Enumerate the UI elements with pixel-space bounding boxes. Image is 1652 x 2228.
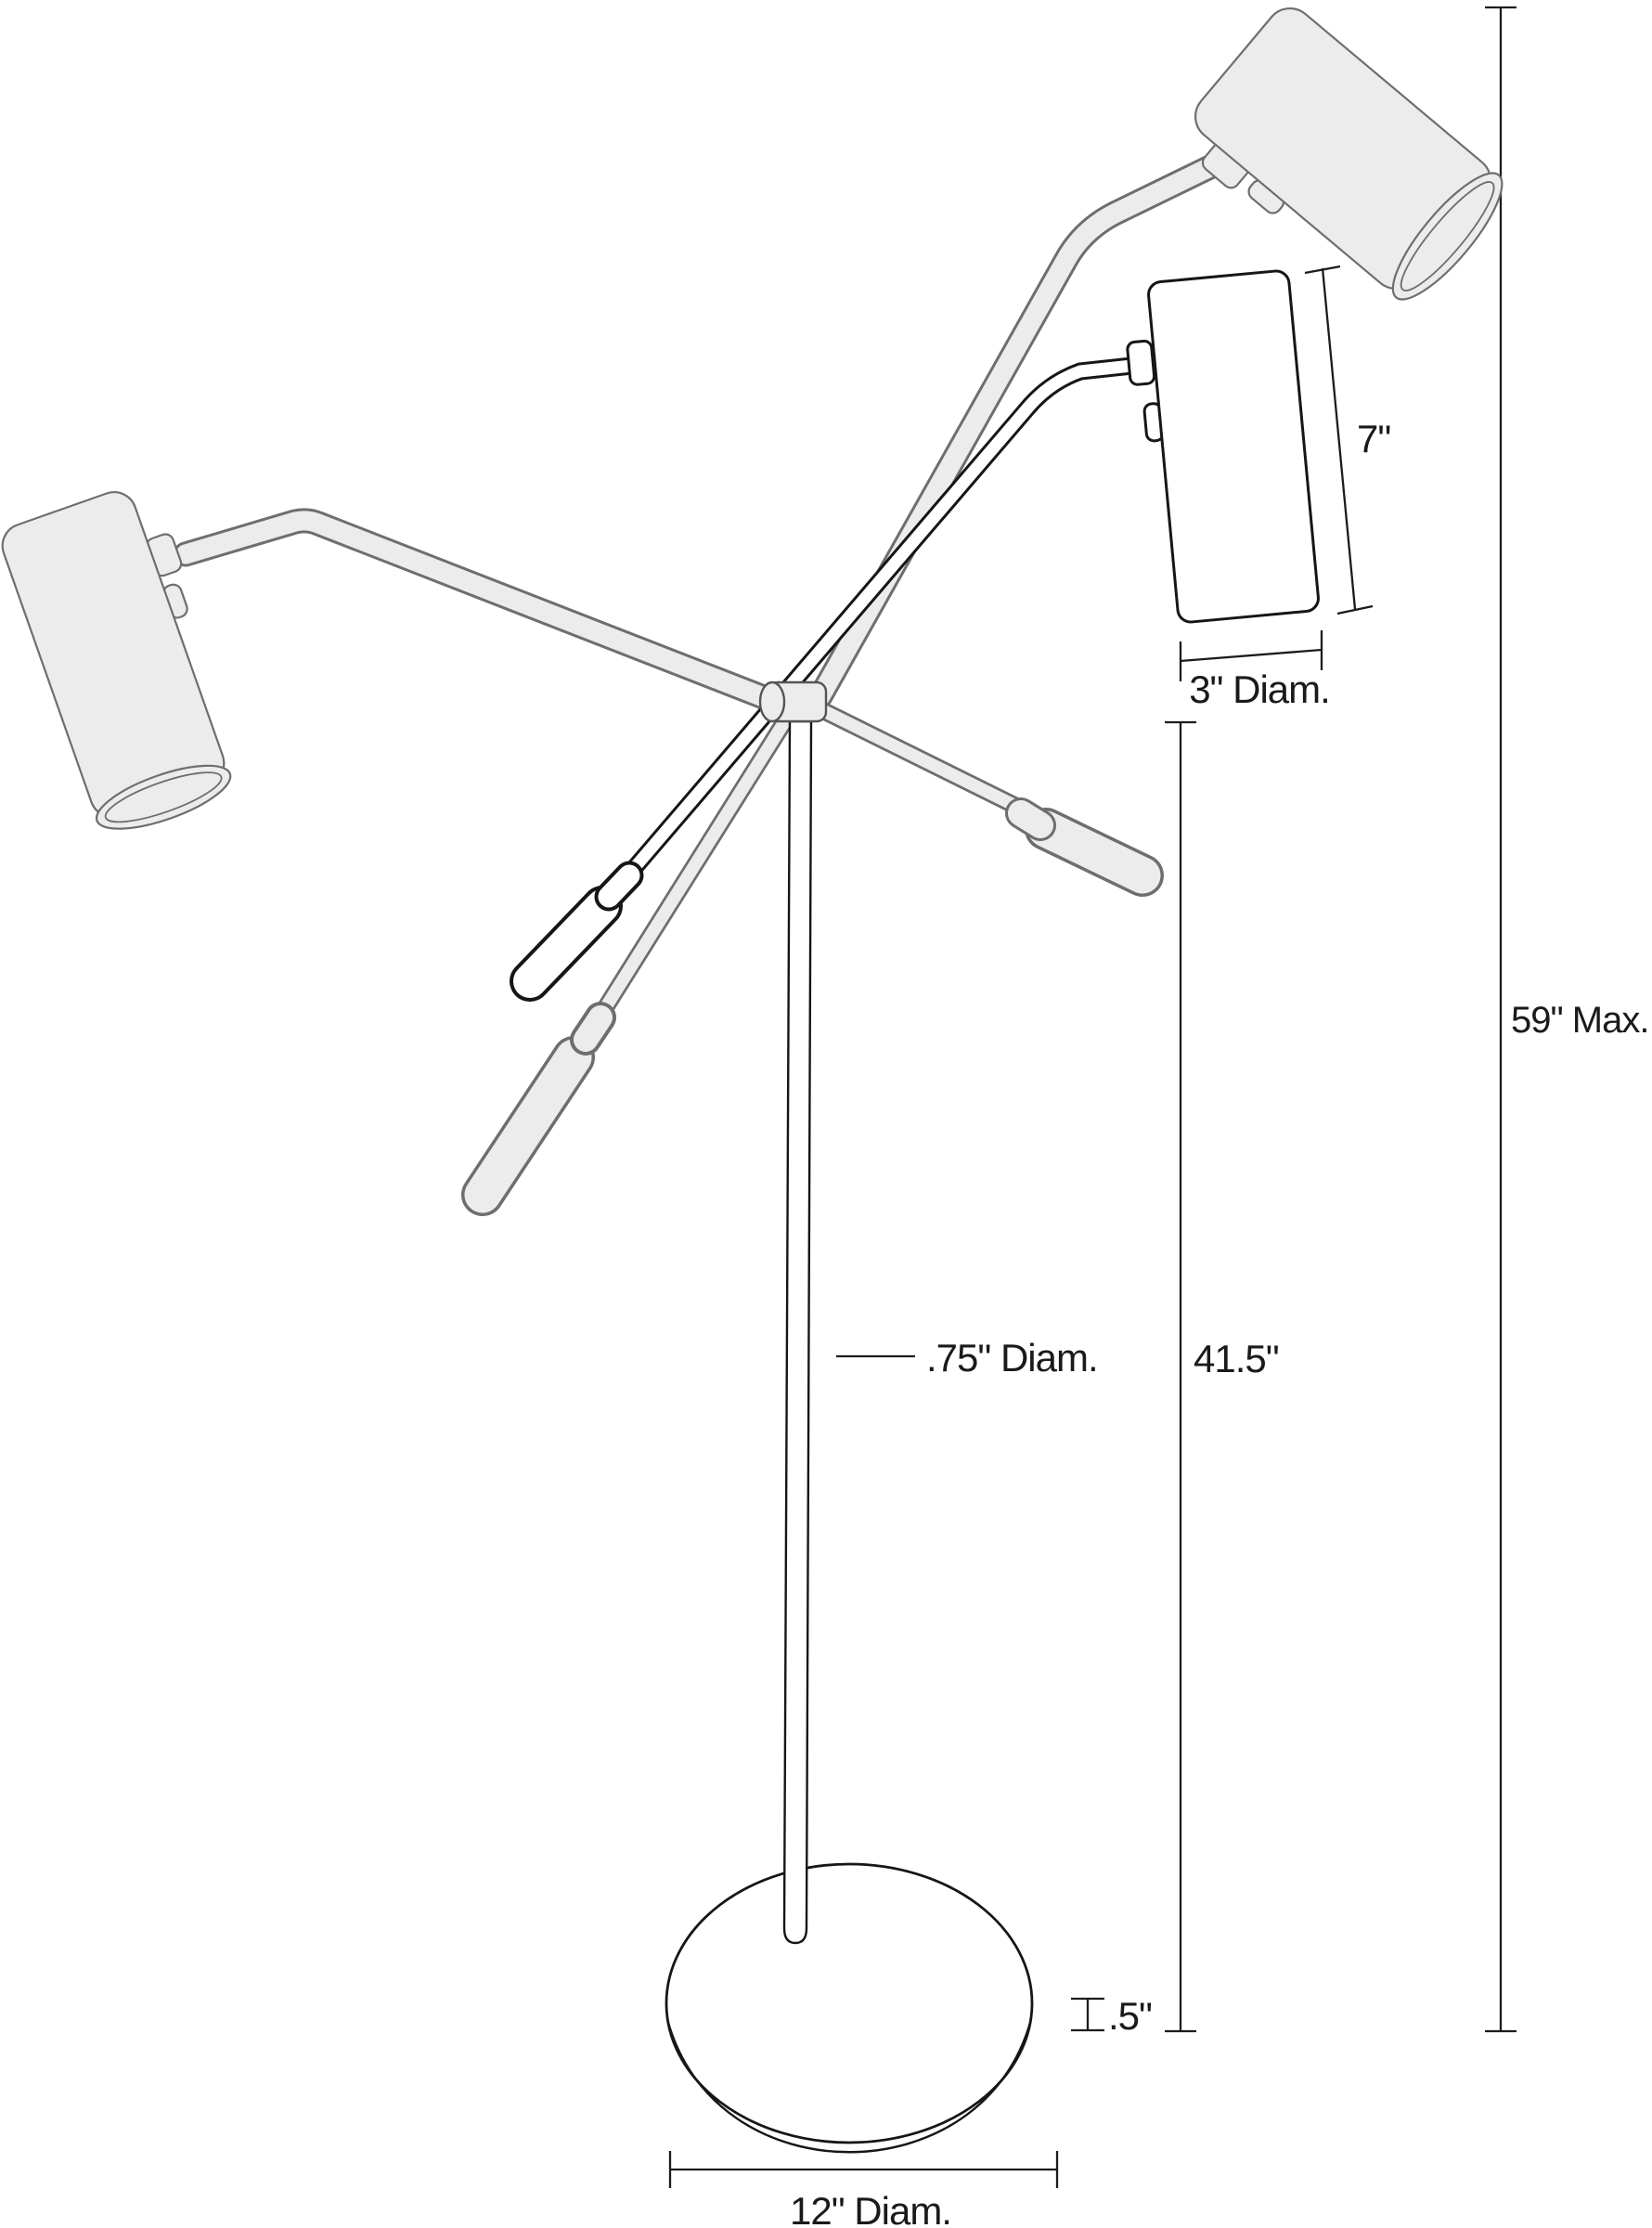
dim-overall-height: 59" Max. xyxy=(1485,7,1648,2031)
dim-shade-height-line xyxy=(1323,268,1355,609)
dim-overall-height-label: 59" Max. xyxy=(1511,1000,1648,1041)
round-base xyxy=(666,1864,1032,2152)
dim-pole-diameter: .75" Diam. xyxy=(836,1336,1098,1380)
dim-shade-diameter-line xyxy=(1181,650,1322,661)
dim-shade-diameter-label: 3" Diam. xyxy=(1189,667,1330,711)
dim-base-thickness-label: .5" xyxy=(1108,1994,1152,2038)
lamp-technical-drawing: 7" 3" Diam. 59" Max. 41.5" .75" Diam. .5… xyxy=(0,0,1652,2228)
arm-left xyxy=(186,521,778,703)
dim-pole-height-label: 41.5" xyxy=(1194,1337,1279,1380)
base-top-surface xyxy=(666,1864,1032,2143)
dim-base-thickness: .5" xyxy=(1071,1994,1152,2038)
dim-pole-height: 41.5" xyxy=(1165,722,1279,2031)
pivot-hub xyxy=(760,682,826,721)
hub-end-cap xyxy=(760,682,784,721)
counterweight-arm-lower-right xyxy=(824,711,1142,875)
dim-shade-diameter: 3" Diam. xyxy=(1181,630,1330,711)
drawing-canvas: 7" 3" Diam. 59" Max. 41.5" .75" Diam. .5… xyxy=(0,0,1652,2228)
dim-pole-diameter-label: .75" Diam. xyxy=(926,1336,1098,1380)
lamp-head-middle xyxy=(1121,270,1319,626)
dim-shade-height-label: 7" xyxy=(1357,417,1390,460)
swivel-joint-middle-head xyxy=(1127,341,1155,385)
dim-shade-height: 7" xyxy=(1305,266,1390,614)
dim-base-diameter-label: 12" Diam. xyxy=(790,2189,951,2228)
dim-base-diameter: 12" Diam. xyxy=(670,2151,1057,2228)
shade-body-middle xyxy=(1147,270,1319,623)
floor-pole xyxy=(784,721,811,1943)
